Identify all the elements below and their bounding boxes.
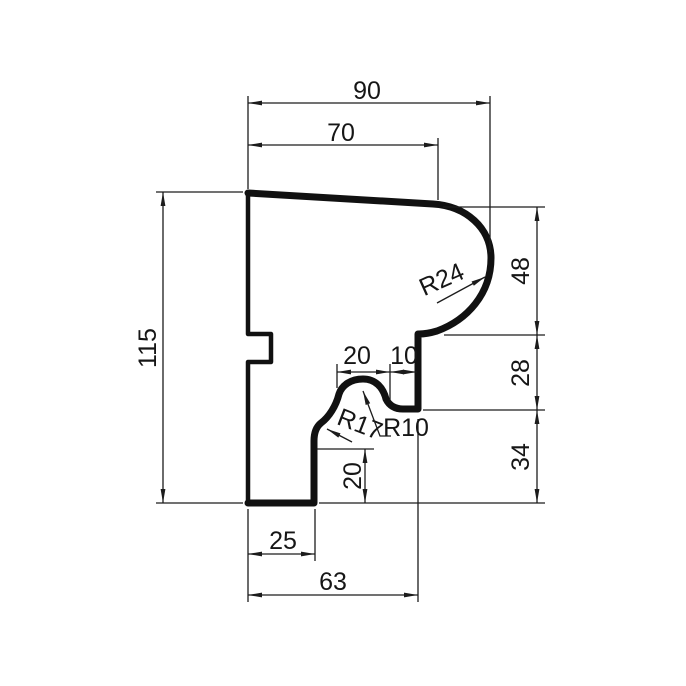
dim-label-top-total: 90 [353, 77, 381, 105]
dim-left-height: 115 [134, 192, 163, 503]
dim-label-bottom-left: 25 [269, 527, 297, 555]
dim-right-lower: 34 [507, 410, 537, 503]
technical-drawing: 90 70 115 48 28 34 20 10 [0, 0, 686, 686]
dim-bump-to-step: 10 [390, 342, 418, 372]
dim-right-middle: 28 [507, 335, 537, 410]
dim-step-height: 20 [339, 449, 367, 503]
dim-label-top-upper: 70 [327, 119, 355, 147]
dim-right-upper: 48 [507, 207, 537, 335]
dim-bottom-left: 25 [248, 527, 315, 555]
dim-label-bump-width: 20 [343, 342, 371, 370]
dim-top-total: 90 [248, 77, 490, 105]
dim-top-upper: 70 [248, 119, 438, 147]
dim-label-right-middle: 28 [507, 359, 535, 387]
radius-label-fillet: R10 [383, 414, 429, 442]
drawing-canvas: 90 70 115 48 28 34 20 10 [0, 0, 686, 686]
dim-label-right-upper: 48 [507, 257, 535, 285]
dim-label-step-height: 20 [339, 462, 367, 490]
dim-label-bottom-total: 63 [319, 568, 347, 596]
dim-label-bump-to-step: 10 [390, 342, 418, 370]
dim-label-left-height: 115 [134, 328, 162, 368]
dim-bottom-total: 63 [248, 568, 418, 596]
radius-label-cove: R17 [333, 403, 386, 446]
dim-label-right-lower: 34 [507, 443, 535, 471]
